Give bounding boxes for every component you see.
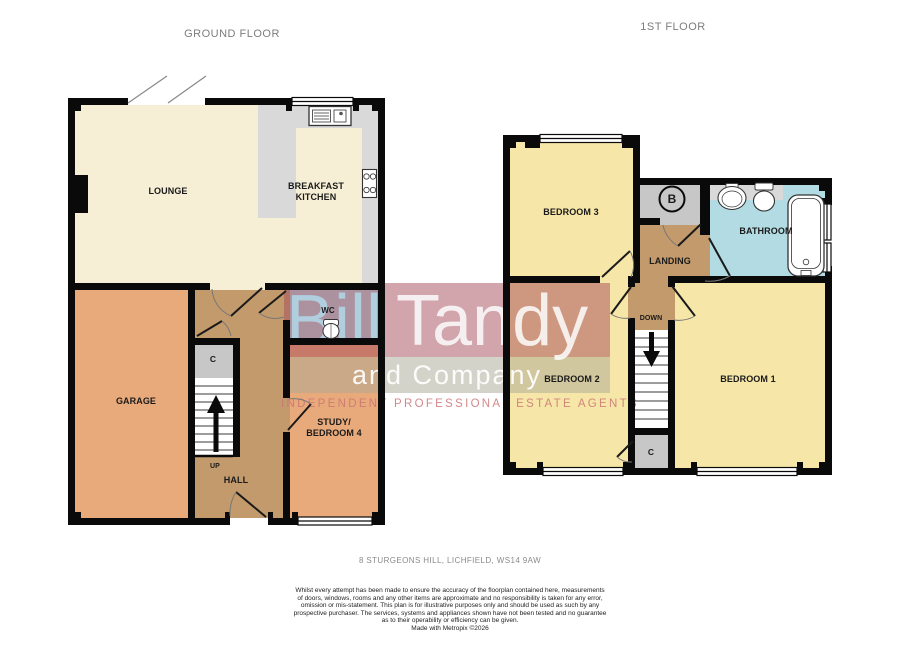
patio-door-icon <box>128 76 206 103</box>
room-label-bedroom1: BEDROOM 1 <box>698 374 798 385</box>
room-label-bedroom3: BEDROOM 3 <box>521 207 621 218</box>
disclaimer-line: of doors, windows, rooms and any other i… <box>0 595 900 603</box>
disclaimer-line: as to their operability or efficiency ca… <box>0 617 900 625</box>
boiler-label: B <box>664 192 680 206</box>
room-label-wc: WC <box>308 306 348 315</box>
room-label-garage: GARAGE <box>96 396 176 407</box>
kitchen-counter-right <box>362 128 378 283</box>
room-label-hall: HALL <box>206 475 266 486</box>
window <box>697 468 797 476</box>
disclaimer-text: Whilst every attempt has been made to en… <box>0 587 900 632</box>
ground-floor-title: GROUND FLOOR <box>132 28 332 40</box>
cupboard-first-label: C <box>644 447 658 457</box>
room-label-study: STUDY/ BEDROOM 4 <box>303 417 365 438</box>
kitchen-counter-left <box>258 128 296 218</box>
floorplan-page: GROUND FLOOR 1ST FLOOR BillTandy and Com… <box>0 0 900 663</box>
stairs-ground-floor <box>195 378 233 456</box>
room-label-landing: LANDING <box>620 256 720 267</box>
room-label-bathroom: BATHROOM <box>716 226 816 237</box>
room-landing-upper-floor <box>640 225 710 283</box>
stairs-down-label: DOWN <box>631 315 671 323</box>
room-label-kitchen: BREAKFAST KITCHEN <box>275 181 357 202</box>
stairs-first-floor <box>635 330 668 428</box>
stairs-up-label: UP <box>200 463 230 471</box>
disclaimer-line: Whilst every attempt has been made to en… <box>0 587 900 595</box>
cupboard-ground-label: C <box>206 354 220 364</box>
room-label-lounge: LOUNGE <box>108 186 228 197</box>
made-with-credit: Made with Metropix ©2026 <box>0 625 900 633</box>
kitchen-counter-top <box>258 105 378 128</box>
window <box>543 468 623 476</box>
bathroom-counter <box>710 183 783 200</box>
property-address: 8 STURGEONS HILL, LICHFIELD, WS14 9AW <box>0 556 900 565</box>
disclaimer-line: prospective purchaser. The services, sys… <box>0 610 900 618</box>
disclaimer-line: omission or mis-statement. This plan is … <box>0 602 900 610</box>
first-floor-title: 1ST FLOOR <box>593 21 753 33</box>
window <box>298 517 372 525</box>
room-label-bedroom2: BEDROOM 2 <box>522 374 622 385</box>
